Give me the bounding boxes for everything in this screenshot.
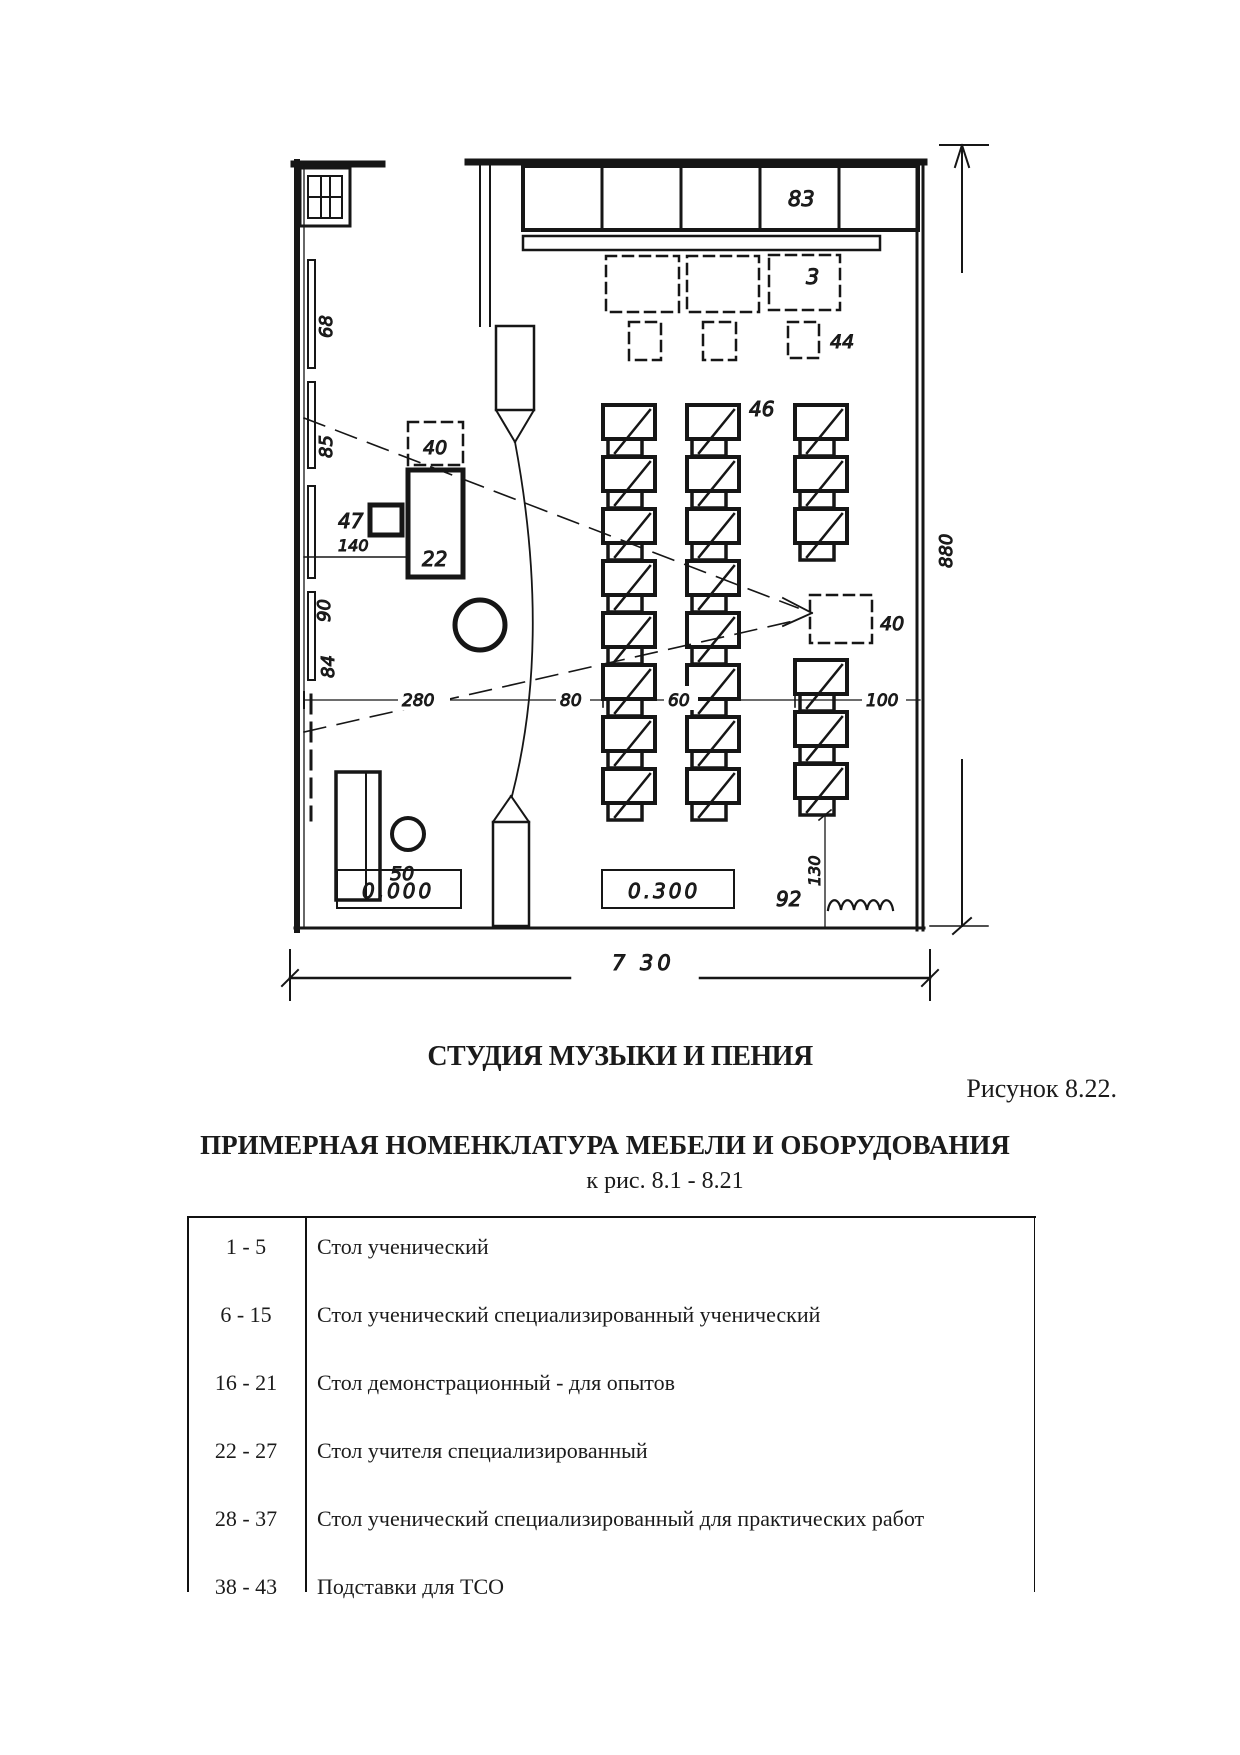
desk-diagonal — [699, 722, 734, 765]
table-row: 16 - 21 Стол демонстрационный - для опыт… — [187, 1366, 1036, 1434]
curtain-symbol: 92 — [776, 887, 893, 911]
label-40-right: 40 — [880, 613, 904, 635]
dim-880: 880 — [930, 145, 988, 934]
label-880: 880 — [936, 534, 957, 568]
label-68: 68 — [316, 315, 337, 338]
item-number-range: 16 - 21 — [187, 1370, 305, 1396]
item-number-range: 28 - 37 — [187, 1506, 305, 1532]
dashed-stands — [606, 255, 840, 360]
label-85: 85 — [316, 435, 337, 458]
dim-730: 7 30 — [282, 950, 938, 1000]
curtain-squiggle-icon — [828, 900, 893, 910]
desk-diagonal — [699, 670, 734, 713]
item-name: Стол учителя специализированный — [317, 1438, 1028, 1464]
item-name: Стол демонстрационный - для опытов — [317, 1370, 1028, 1396]
table-row: 1 - 5 Стол ученический — [187, 1230, 1036, 1298]
desk-diagonal — [807, 410, 842, 453]
nomenclature-table: 1 - 5 Стол ученический 6 - 15 Стол учени… — [187, 1216, 1036, 1592]
label-140: 140 — [338, 536, 369, 555]
label-83: 83 — [788, 187, 815, 211]
desk-diagonal — [699, 462, 734, 505]
label-80: 80 — [560, 691, 582, 711]
figure-caption: Рисунок 8.22. — [966, 1074, 1117, 1104]
floor-plan-figure: 83 3 44 — [240, 120, 1000, 1020]
label-84: 84 — [318, 655, 339, 678]
table-row: 38 - 43 Подставки для ТСО — [187, 1570, 1036, 1638]
document-page: 83 3 44 — [0, 0, 1240, 1755]
desk-diagonal — [807, 462, 842, 505]
desk-diagonal — [615, 670, 650, 713]
item-number-range: 38 - 43 — [187, 1574, 305, 1600]
label-280: 280 — [402, 691, 434, 711]
item-name: Стол ученический — [317, 1234, 1028, 1260]
desk-diagonal — [699, 618, 734, 661]
label-730: 7 30 — [612, 951, 675, 975]
cabinet-row: 83 — [523, 166, 918, 250]
desk-diagonal — [699, 410, 734, 453]
figure-title: СТУДИЯ МУЗЫКИ И ПЕНИЯ — [240, 1041, 1000, 1073]
label-46: 46 — [749, 397, 774, 421]
label-level-0: 0,000 — [362, 879, 434, 903]
desk-diagonal — [615, 722, 650, 765]
label-level-300: 0.300 — [628, 879, 700, 903]
label-92: 92 — [776, 887, 801, 911]
item-name: Стол ученический специализированный учен… — [317, 1302, 1028, 1328]
desk-diagonal — [699, 774, 734, 817]
table-row: 6 - 15 Стол ученический специализированн… — [187, 1298, 1036, 1366]
label-90: 90 — [314, 599, 335, 622]
desk-diagonal — [807, 769, 842, 812]
dim-130: 130 — [805, 810, 831, 926]
partition-track — [480, 166, 534, 926]
floor-plan-svg: 83 3 44 — [240, 120, 1000, 1020]
item-name: Подставки для ТСО — [317, 1574, 1028, 1600]
desk-diagonal — [615, 566, 650, 609]
table-row: 28 - 37 Стол ученический специализирован… — [187, 1502, 1036, 1570]
sight-lines — [304, 418, 812, 732]
table-row: 22 - 27 Стол учителя специализированный — [187, 1434, 1036, 1502]
label-130: 130 — [805, 855, 824, 886]
desk-diagonal — [615, 462, 650, 505]
desk-diagonal — [615, 774, 650, 817]
window-icon — [310, 178, 340, 216]
item-number-range: 1 - 5 — [187, 1234, 305, 1260]
label-3: 3 — [806, 265, 819, 289]
label-60: 60 — [668, 691, 690, 711]
label-44: 44 — [830, 331, 854, 353]
desk-diagonal — [807, 514, 842, 557]
nomenclature-title: ПРИМЕРНАЯ НОМЕНКЛАТУРА МЕБЕЛИ И ОБОРУДОВ… — [170, 1130, 1040, 1161]
desk-diagonal — [807, 717, 842, 760]
desk-diagonal — [615, 514, 650, 557]
stand-40-right — [810, 595, 872, 643]
stool — [455, 600, 505, 650]
label-100: 100 — [866, 691, 898, 711]
nomenclature-subtitle: к рис. 8.1 - 8.21 — [170, 1168, 1160, 1195]
desk-diagonal — [615, 410, 650, 453]
desk-diagonal — [807, 665, 842, 708]
item-number-range: 6 - 15 — [187, 1302, 305, 1328]
label-40-left: 40 — [423, 437, 447, 459]
label-22: 22 — [422, 547, 447, 571]
desk-diagonal — [699, 514, 734, 557]
corner-room — [300, 168, 350, 226]
label-47: 47 — [338, 509, 364, 533]
item-number-range: 22 - 27 — [187, 1438, 305, 1464]
wall-boards: 68 85 90 84 — [308, 260, 339, 820]
item-name: Стол ученический специализированный для … — [317, 1506, 1028, 1532]
